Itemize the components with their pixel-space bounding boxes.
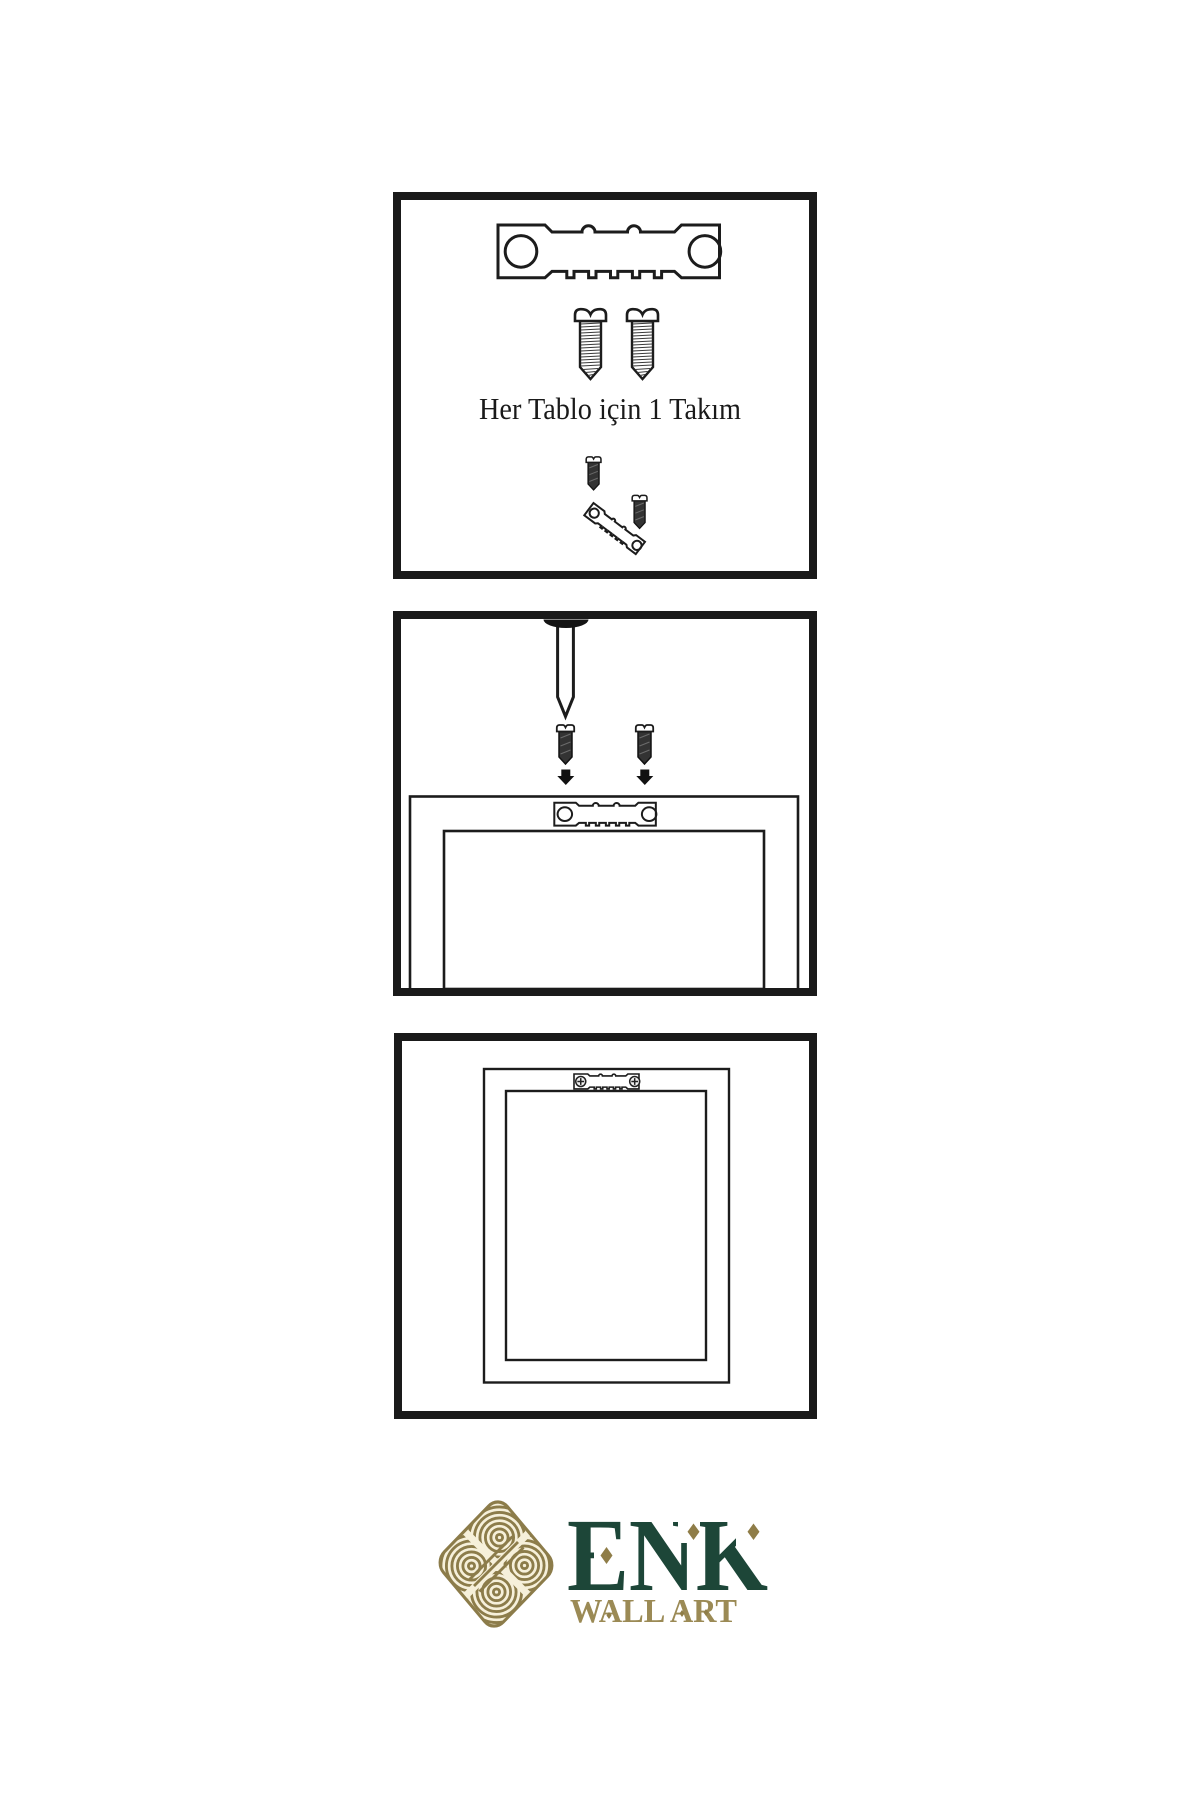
svg-text:Her Tablo için 1 Takım: Her Tablo için 1 Takım [479,391,741,426]
svg-text:WALL ART: WALL ART [570,1593,737,1630]
